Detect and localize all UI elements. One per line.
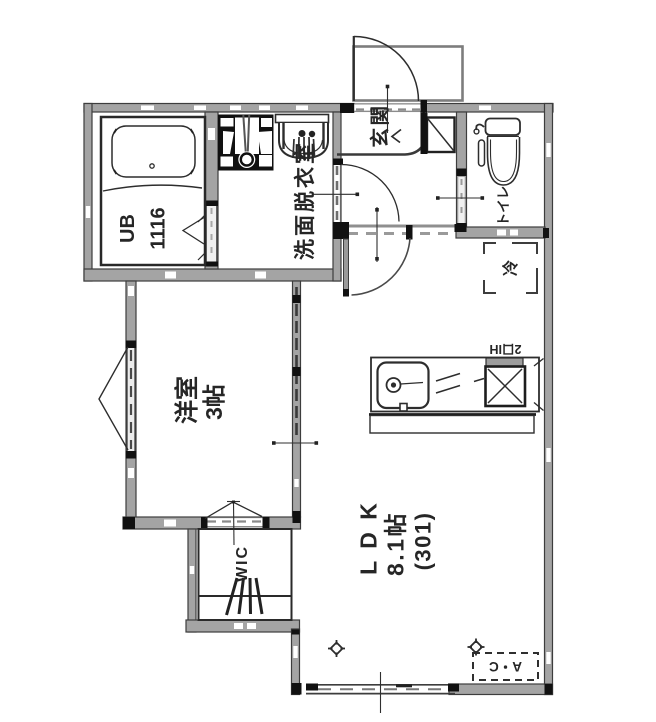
svg-text:冷: 冷 (501, 260, 520, 276)
svg-text:トイレ: トイレ (496, 186, 511, 227)
svg-text:3帖: 3帖 (201, 384, 227, 420)
svg-text:洋室: 洋室 (173, 376, 201, 424)
svg-text:A・C: A・C (489, 659, 522, 674)
svg-text:WIC: WIC (234, 545, 251, 582)
svg-text:UB: UB (117, 214, 139, 243)
svg-text:8.1帖: 8.1帖 (383, 511, 409, 576)
svg-text:玄関: 玄関 (368, 103, 391, 147)
svg-text:2口IH: 2口IH (490, 342, 522, 356)
svg-text:洗面脱衣室: 洗面脱衣室 (293, 140, 317, 260)
svg-text:L D K: L D K (356, 500, 382, 575)
svg-text:(301): (301) (411, 512, 436, 571)
svg-text:1116: 1116 (148, 207, 170, 249)
